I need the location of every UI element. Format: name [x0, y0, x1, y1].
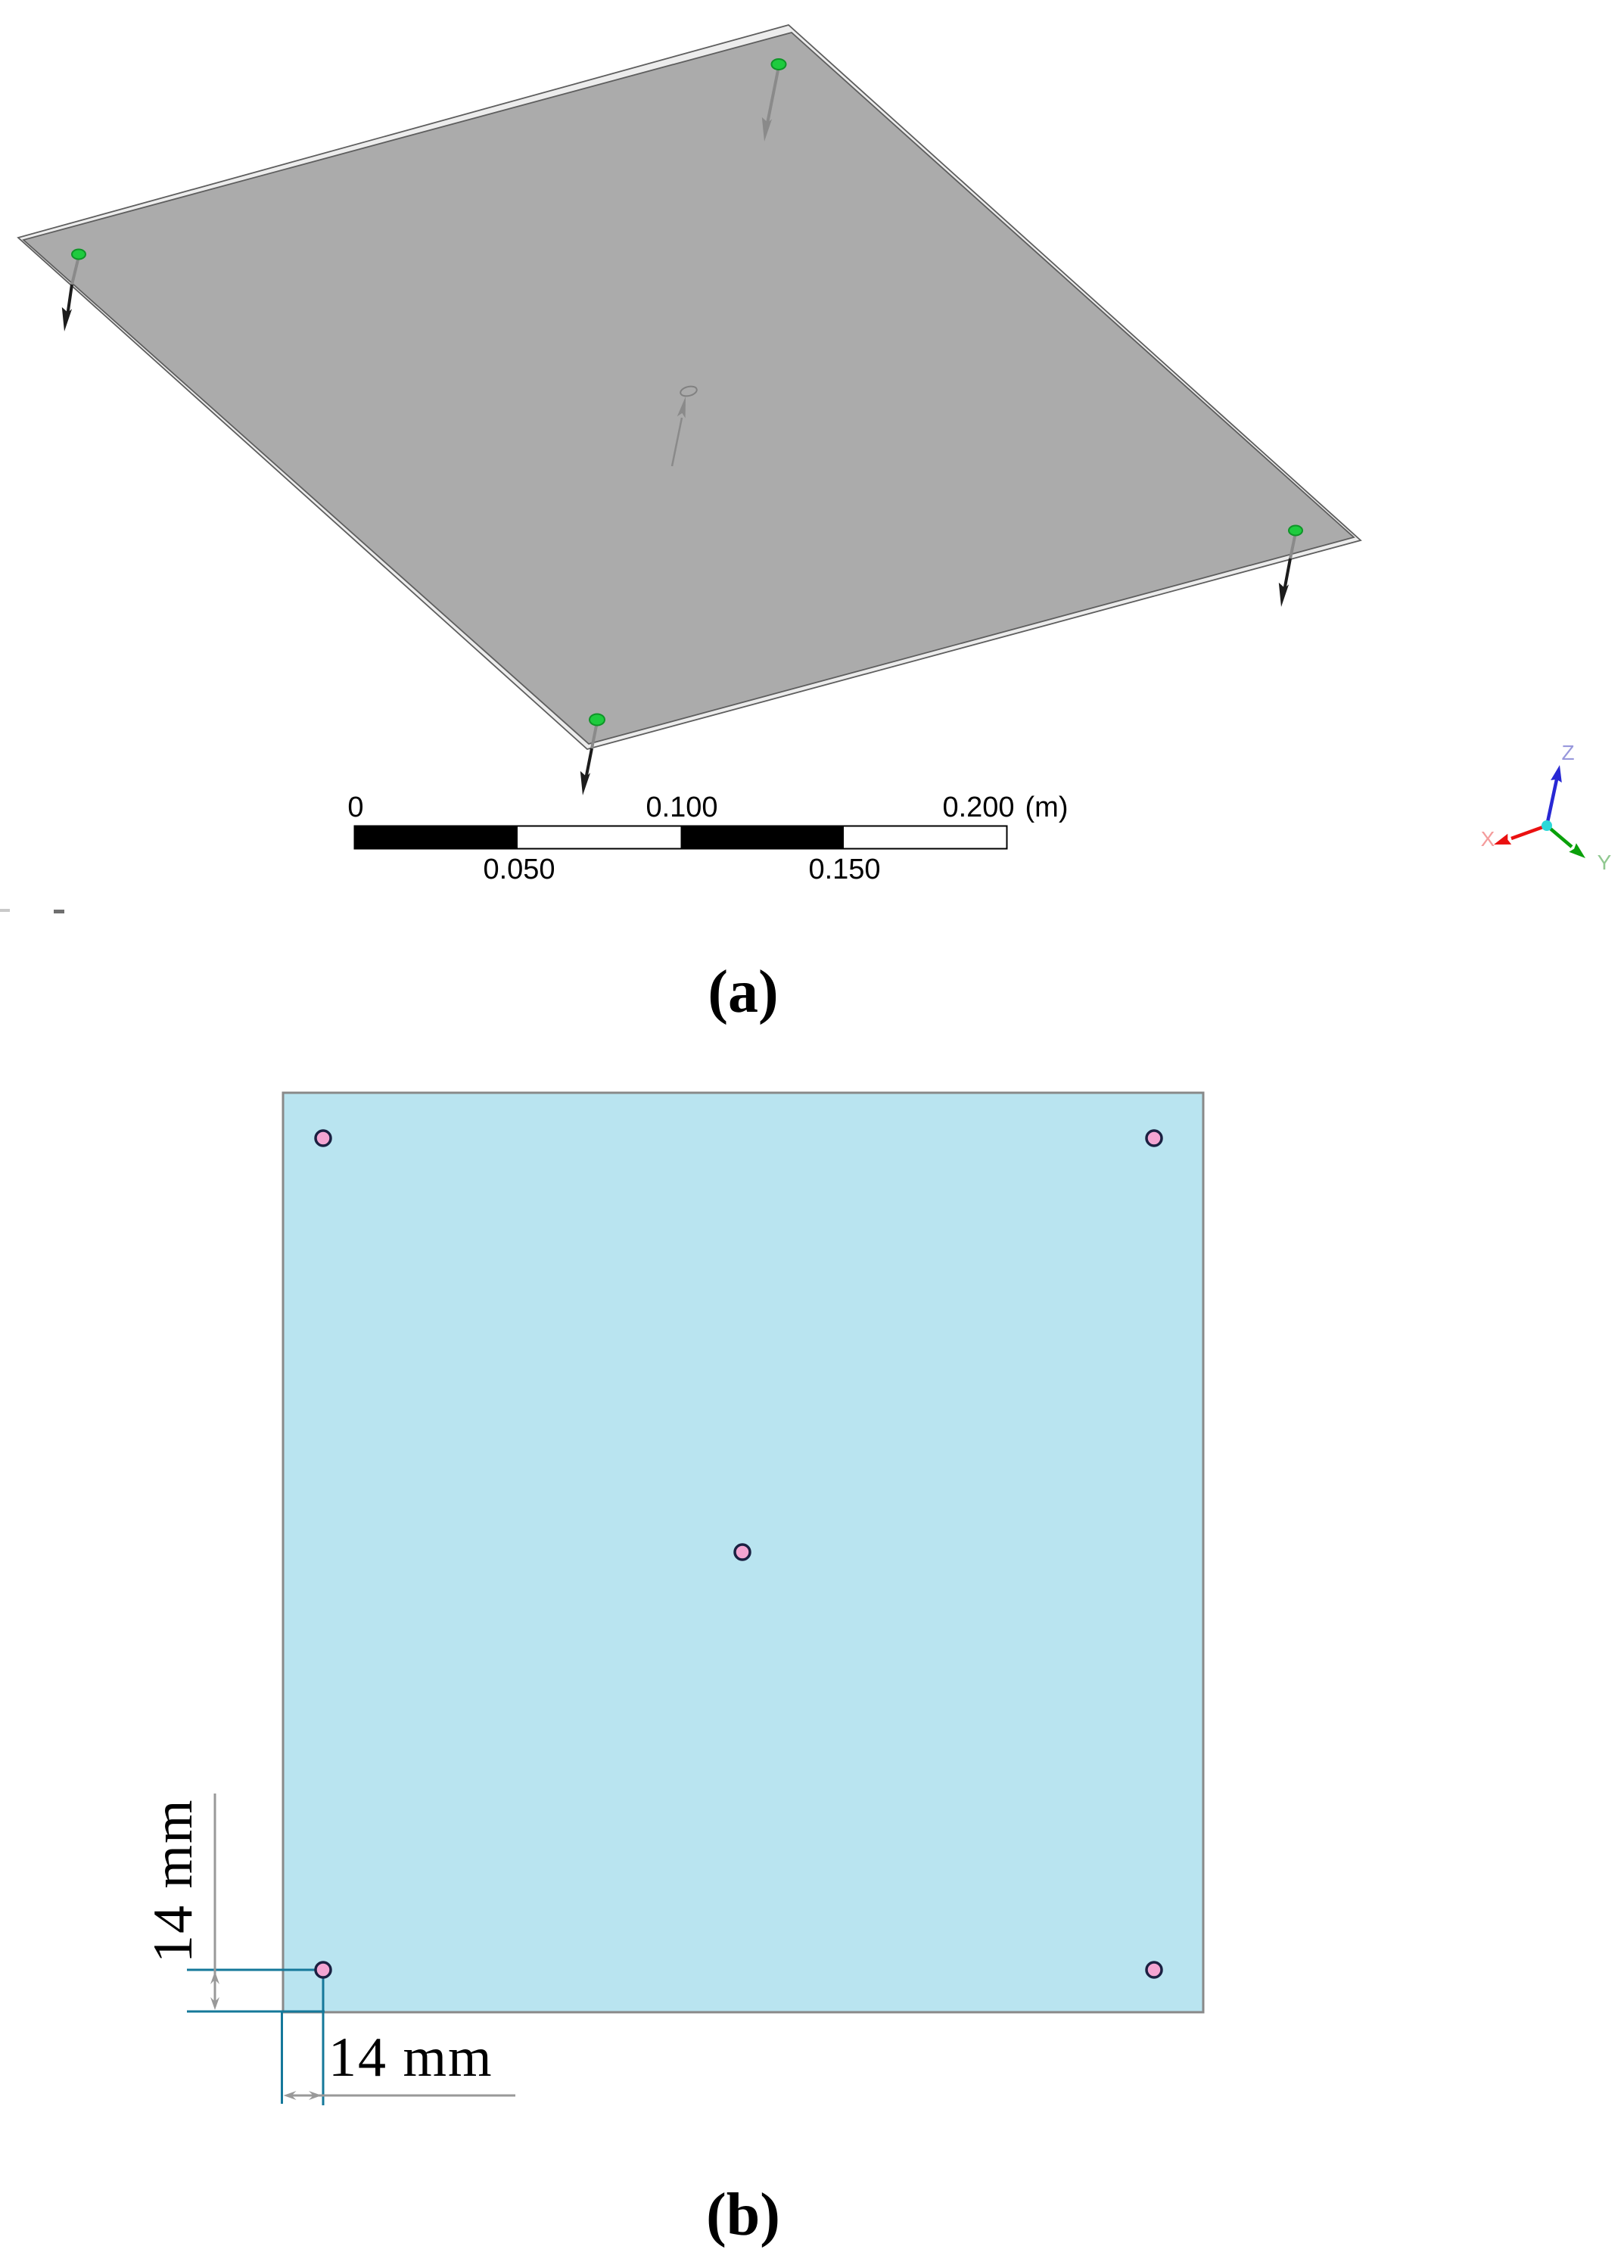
svg-text:X: X [1481, 827, 1495, 851]
svg-text:14 mm: 14 mm [142, 1798, 204, 1963]
svg-text:Z: Z [1561, 741, 1574, 764]
svg-text:0.100: 0.100 [646, 792, 717, 823]
svg-text:0.050: 0.050 [483, 854, 555, 885]
svg-text:(a): (a) [708, 959, 778, 1025]
svg-text:0: 0 [347, 792, 363, 823]
svg-text:0.200: 0.200 [942, 792, 1014, 823]
svg-text:(b): (b) [706, 2182, 780, 2248]
svg-text:(m): (m) [1025, 792, 1069, 823]
svg-text:Y: Y [1598, 851, 1612, 874]
svg-text:14 mm: 14 mm [328, 2027, 493, 2089]
svg-text:0.150: 0.150 [808, 854, 880, 885]
